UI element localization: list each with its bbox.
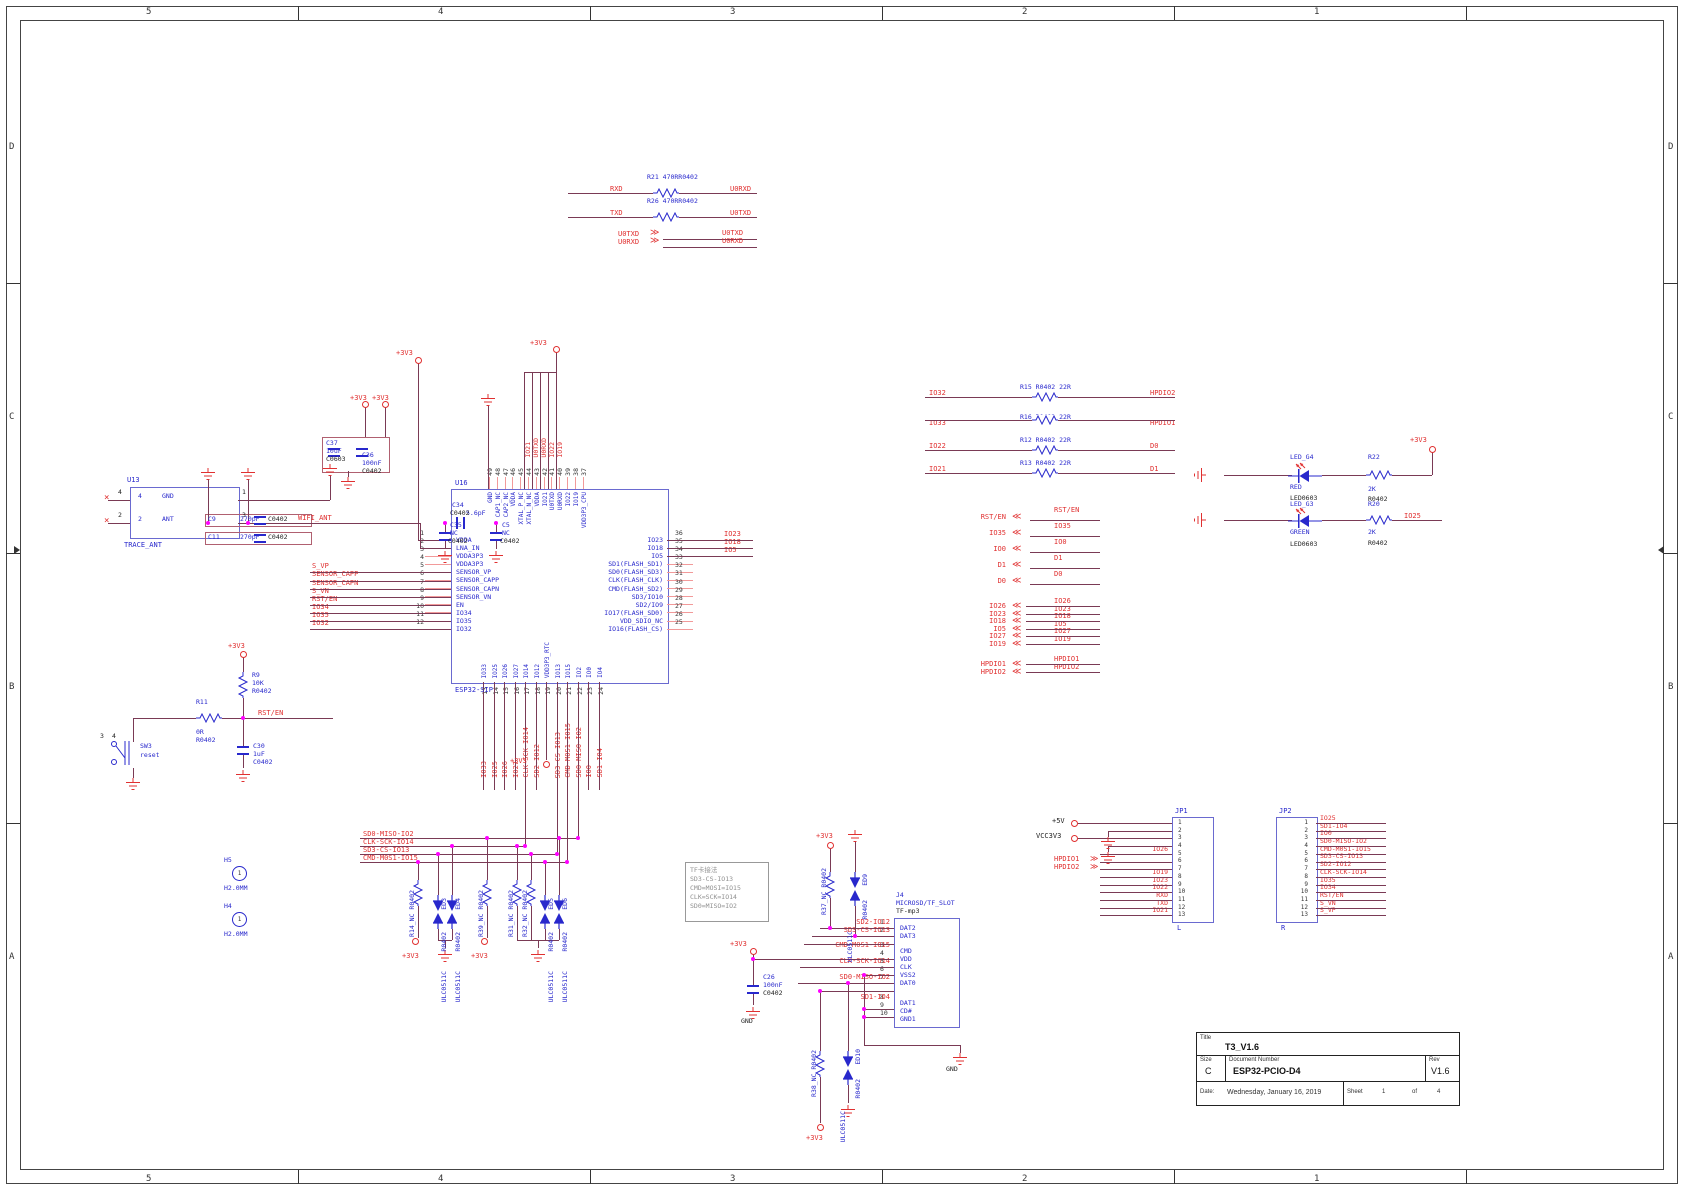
label-antenna-c34_pkg: C0402 [450, 510, 470, 517]
jp2-pin[interactable]: 6 [1278, 857, 1312, 865]
wire [667, 548, 753, 549]
jp1-pin[interactable]: 4 [1174, 842, 1194, 850]
wire [1100, 908, 1172, 909]
label-j4-pwr: +3V3 [730, 940, 747, 948]
wire [238, 500, 330, 501]
j4-pin[interactable]: 9CD# [896, 1007, 956, 1015]
doc-number-label: Document Number [1229, 1057, 1279, 1063]
zone-label: D [9, 142, 14, 152]
wire [548, 372, 549, 489]
capacitor-symbol[interactable] [747, 985, 759, 994]
label-leds-1-net: IO25 [1404, 512, 1421, 520]
zone-strip-bottom: 54321 [0, 1174, 1684, 1186]
pin-name: IO34 [456, 609, 499, 617]
wire [531, 906, 532, 940]
pin-stub [505, 477, 506, 489]
power-terminal[interactable] [827, 842, 834, 849]
label-tvs_top-pwr: +3V3 [816, 832, 833, 840]
label-uart-bus_right_txd: U0TXD [722, 229, 743, 237]
wire [310, 589, 451, 590]
wire [559, 929, 560, 940]
esp32-top-pin-numbers: 49484746454443424140393837 [486, 457, 587, 489]
wire [108, 523, 130, 524]
wire [599, 682, 600, 790]
wire [1100, 877, 1172, 878]
pin-name: VSS2 [896, 971, 956, 979]
label-esd-ulc: ULC0511C [562, 971, 569, 1002]
junction-dot [565, 860, 569, 864]
label-reset-sw_label: reset [140, 752, 160, 759]
jp1-pin[interactable]: 11 [1174, 896, 1194, 904]
label-reset-sw_pin3: 3 [100, 733, 104, 740]
wire [1316, 869, 1386, 870]
junction-dot [557, 836, 561, 840]
jp1-pin[interactable]: 12 [1174, 904, 1194, 912]
esp32-top-pin[interactable]: 37 [580, 457, 588, 489]
glyph-mark: × [104, 517, 109, 526]
wire [925, 450, 1032, 451]
wire [1224, 520, 1292, 521]
net-label: D1 [950, 561, 1006, 569]
wire [108, 500, 130, 501]
jp1-pin[interactable]: 6 [1174, 857, 1194, 865]
edge-arrow [1658, 546, 1664, 554]
tf-note-line: CMD=MOSI=IO15 [690, 884, 764, 893]
label-j4-sub: TF-mp3 [896, 908, 919, 915]
bus-entry-chevron: ≪ [1012, 560, 1021, 570]
pin-name: IO26 [502, 664, 509, 678]
zone-tick [1466, 1170, 1467, 1184]
pin-stub [575, 477, 576, 489]
wire [588, 682, 589, 790]
wire [1100, 892, 1172, 893]
junction-dot [862, 1007, 866, 1011]
label-esd-ed3: ED3 [441, 898, 448, 910]
label-leds-1-rpkg: R0402 [1368, 540, 1388, 547]
wire [925, 397, 1032, 398]
label-uart-u0rxd: U0RXD [730, 185, 751, 193]
wire [418, 862, 419, 880]
label-esp32-ref: U16 [455, 479, 468, 487]
junction-dot [543, 860, 547, 864]
label-tvs_top-ed_ref: ED9 [862, 874, 869, 886]
jp2-pin[interactable]: 4 [1278, 842, 1312, 850]
zone-tick [1664, 283, 1678, 284]
wire [1322, 520, 1366, 521]
zone-strip-top: 54321 [0, 7, 1684, 19]
title-label: Title [1200, 1035, 1211, 1041]
wire [1316, 831, 1386, 832]
wire [667, 556, 753, 557]
label-esd-bus-0: SD0-MISO-IO2 [363, 830, 414, 838]
edge-arrow [14, 546, 20, 554]
wire [960, 1045, 961, 1053]
wire [864, 1045, 960, 1046]
label-antenna-c9_val: 270pF [240, 516, 260, 523]
label-jp1-p5v: +5V [1052, 817, 1065, 825]
pin-name: SENSOR_VN [456, 593, 499, 601]
junction-dot [846, 981, 850, 985]
esp32-bottom-pin-names: IO33IO25IO26IO27IO14IO12VDD3P3_RTCIO13IO… [479, 620, 605, 680]
pin-name: IO4 [597, 667, 604, 678]
wire [1078, 838, 1172, 839]
pin-stub [520, 477, 521, 489]
label-tvs_bot-ed_part: ULC0511C [840, 1111, 847, 1142]
net-label: RST/EN [950, 513, 1006, 521]
pin-stub [559, 477, 560, 489]
pin-name: SENSOR_CAPN [456, 585, 499, 593]
jp1-pin[interactable]: 7 [1174, 865, 1194, 873]
wire [420, 548, 451, 549]
label-esp32-pwr2: +3V3 [396, 349, 413, 357]
power-terminal[interactable] [382, 401, 389, 408]
jp1-pin[interactable]: 8 [1174, 873, 1194, 881]
jp1-pin[interactable]: 10 [1174, 888, 1194, 896]
net-label: SD0-MISO-IO2 [575, 727, 583, 778]
pin-name: DAT2 [896, 924, 956, 932]
label-esd-pwr1: +3V3 [402, 952, 419, 960]
wire [517, 846, 518, 880]
wire [1030, 584, 1100, 585]
label-leds-1-ref: LED_G3 [1290, 501, 1313, 508]
label-esd-ulc: ULC0511C [441, 971, 448, 1002]
net-label: SD1-IO4 [700, 993, 890, 1001]
label-antenna-c11_ref: C11 [208, 534, 220, 541]
net-label: CMD-M0S1-IO15 [700, 941, 890, 949]
pin-name: IO0 [586, 667, 593, 678]
wire [1026, 672, 1100, 673]
net-label: D0 [950, 577, 1006, 585]
label-esp32-top_nets-2: U0RXD [541, 438, 548, 458]
zone-tick [6, 283, 20, 284]
tf-note-line: TF卡接法 [690, 866, 764, 875]
net-label: HPDIO1 [1054, 655, 1079, 663]
wire [1030, 552, 1100, 553]
label-esd-pkg: R0402 [562, 932, 569, 952]
wire [515, 682, 516, 790]
wire [1316, 838, 1386, 839]
esp32-right-pin[interactable]: 25 [667, 625, 693, 633]
label-c26-pkg: C0402 [763, 990, 783, 997]
pin-stub [544, 477, 545, 489]
wire [1058, 450, 1175, 451]
power-terminal[interactable] [1071, 820, 1078, 827]
rev-value: V1.6 [1431, 1066, 1450, 1076]
wire [538, 940, 539, 948]
zone-tick [1664, 823, 1678, 824]
jp2-pin[interactable]: 7 [1278, 865, 1312, 873]
label-reset-net: RST/EN [258, 709, 283, 717]
wire [517, 906, 518, 940]
power-terminal[interactable] [543, 761, 550, 768]
zone-strip-right: DCBA [1668, 0, 1678, 1190]
wire [243, 657, 244, 672]
sheet-total: 4 [1437, 1089, 1440, 1095]
wire [830, 898, 831, 928]
hole-circle: 1 [232, 912, 247, 927]
junction-dot [436, 852, 440, 856]
jp1-pin[interactable]: 13 [1174, 911, 1194, 919]
j4-pin[interactable]: 7DAT0 [896, 979, 956, 987]
jp2-pin[interactable]: 11 [1278, 896, 1312, 904]
j4-pin[interactable]: 6VSS2 [896, 971, 956, 979]
pin-name: IO14 [523, 664, 530, 678]
net-label: D1 [1054, 554, 1062, 562]
wire [310, 621, 451, 622]
power-terminal[interactable] [240, 651, 247, 658]
wire [1432, 452, 1433, 475]
jp2-pin[interactable]: 12 [1278, 904, 1312, 912]
wire [1316, 846, 1386, 847]
wire [483, 682, 484, 790]
pin-stub [667, 629, 693, 630]
label-antenna-c35_pkg: C0402 [448, 538, 468, 545]
zone-tick [590, 6, 591, 20]
bus-entry-chevron: ≪ [1012, 576, 1021, 586]
mounting-holes: H5 1 H2.0MM H4 1 H2.0MM [224, 856, 284, 948]
jp1-pin[interactable]: 3 [1174, 834, 1194, 842]
j4-pin[interactable]: 5CLK [896, 963, 956, 971]
zone-tick [1174, 1170, 1175, 1184]
label-jp2-ref: JP2 [1279, 807, 1292, 815]
power-terminal[interactable] [412, 938, 419, 945]
wire [1026, 621, 1100, 622]
zone-label: 3 [730, 7, 735, 17]
wire [360, 862, 567, 863]
pin-name: IO5 [520, 552, 663, 560]
wire [848, 983, 849, 1051]
esp32-top-pin[interactable]: 40 [556, 457, 564, 489]
zone-label: C [1668, 412, 1673, 422]
pin-name: CMD(FLASH_SD2) [520, 585, 663, 593]
j4-pin[interactable]: 8DAT1 [896, 999, 956, 1007]
label-uart-bus_right_rxd: U0RXD [722, 237, 743, 245]
wire [556, 352, 557, 372]
net-label: IO19 [950, 640, 1006, 648]
jp1-pin[interactable]: 1 [1174, 819, 1194, 827]
wire [1316, 854, 1386, 855]
pin-name: VDD3P3_CPU [581, 492, 588, 528]
label-reset-r9_pkg: R0402 [252, 688, 272, 695]
net-label: IO35 [1054, 522, 1071, 530]
jp1-pin[interactable]: 2 [1174, 827, 1194, 835]
jp2-pin[interactable]: 9 [1278, 881, 1312, 889]
wire [532, 372, 533, 489]
power-terminal[interactable] [415, 357, 422, 364]
wire [1026, 636, 1100, 637]
label-uart-rxd: RXD [610, 185, 623, 193]
wire [925, 473, 1032, 474]
jp2-pin[interactable]: 13 [1278, 911, 1312, 919]
schematic-sheet: 54321 54321 DCBA DCBA TF卡接法SD3-CS-IO13CM… [0, 0, 1684, 1190]
pin-stub [551, 477, 552, 489]
jp2-pin[interactable]: 10 [1278, 888, 1312, 896]
zone-label: A [9, 952, 14, 962]
label-c26-gnd: GND [741, 1018, 753, 1025]
j4-pin[interactable]: 3CMD [896, 947, 956, 955]
junction-dot [862, 1015, 866, 1019]
power-terminal[interactable] [1429, 446, 1436, 453]
wire [545, 862, 546, 895]
label-esd-r39: R39_NC R0402 [478, 890, 485, 937]
wire [546, 682, 547, 760]
jp2-pin[interactable]: 8 [1278, 873, 1312, 881]
esp32-top-pin[interactable]: 38 [572, 457, 580, 489]
u13-ref: U13 [127, 476, 140, 484]
jp2-pin[interactable]: 2 [1278, 827, 1312, 835]
zone-strip-left: DCBA [9, 0, 19, 1190]
wire [663, 247, 757, 248]
zone-tick [1466, 6, 1467, 20]
pin-name: CLK(FLASH_CLK) [520, 576, 663, 584]
label-antenna-c5_pkg: C0402 [500, 538, 520, 545]
label-esp32-part: ESP32-SIP [455, 686, 493, 694]
pin-name: IO2 [576, 667, 583, 678]
net-label: IO25 [491, 761, 499, 778]
wire [820, 1077, 821, 1123]
j4-pin[interactable]: 1DAT2 [896, 924, 956, 932]
zone-tick [1174, 6, 1175, 20]
wire [864, 1009, 894, 1010]
tf-note-line: SD0=MISO=IO2 [690, 902, 764, 911]
wire [1026, 664, 1100, 665]
label-esd-ed5: ED5 [548, 898, 555, 910]
j4-pin[interactable]: 10GND1 [896, 1015, 956, 1023]
label-esd-pwr2: +3V3 [471, 952, 488, 960]
net-label: CMD-M0S1-IO15 [564, 723, 572, 778]
label-jp1-ref: JP1 [1175, 807, 1188, 815]
jp1-pin[interactable]: 5 [1174, 850, 1194, 858]
zone-label: 1 [1314, 1174, 1319, 1184]
label-leds-0-rval: 2K [1368, 486, 1376, 493]
glyph-mark: ≫ [1090, 863, 1098, 871]
label-esd-ed4: ED4 [455, 898, 462, 910]
wire [667, 540, 753, 541]
wire [1058, 397, 1175, 398]
wire [1030, 520, 1100, 521]
label-reset-sw_pin4: 4 [112, 733, 116, 740]
mounting-hole[interactable]: H5 1 H2.0MM [224, 856, 284, 902]
wire [820, 991, 894, 992]
j4-pin[interactable]: 4VDD [896, 955, 956, 963]
mounting-hole[interactable]: H4 1 H2.0MM [224, 902, 284, 948]
pin-name: IO33 [481, 664, 488, 678]
zone-label: 4 [438, 1174, 443, 1184]
sheet-label: Sheet [1347, 1089, 1363, 1095]
port-arrows-group-b: IO26≪IO26IO23≪IO23IO18≪IO18IO5≪IO5IO27≪I… [950, 603, 1150, 648]
jp2-pin[interactable]: 5 [1278, 850, 1312, 858]
wire [1316, 862, 1386, 863]
jp2-pin-numbers: 12345678910111213 [1278, 819, 1312, 919]
label-antenna-c11_val: 270pF [240, 534, 260, 541]
zone-tick [298, 6, 299, 20]
wire [133, 768, 134, 778]
label-uart-txd: TXD [610, 209, 623, 217]
zone-label: B [1668, 682, 1673, 692]
wire [1316, 823, 1386, 824]
wire [243, 718, 333, 719]
jp2-pin[interactable]: 1 [1278, 819, 1312, 827]
wire [753, 959, 894, 960]
pin-name: VDD [896, 955, 956, 963]
power-terminal[interactable] [481, 938, 488, 945]
wire [1108, 831, 1109, 837]
wire [310, 605, 451, 606]
label-esp32-pwr3: +3V3 [510, 757, 527, 765]
glyph-mark: ≫ [650, 237, 659, 246]
wire [524, 372, 525, 489]
wire [556, 372, 557, 489]
zone-tick [882, 1170, 883, 1184]
esp32-top-pin[interactable]: 48 [494, 457, 502, 489]
power-terminal[interactable] [362, 401, 369, 408]
pin-name: SD0(FLASH_SD3) [520, 568, 663, 576]
tf-note-line: CLK=SCK=IO14 [690, 893, 764, 902]
esp32-top-pin[interactable]: 39 [564, 457, 572, 489]
wire [1026, 614, 1100, 615]
jp2-pin[interactable]: 3 [1278, 834, 1312, 842]
label-antenna-c9_ref: C9 [208, 516, 216, 523]
wire [1108, 846, 1172, 847]
label-esd-pkg: R0402 [548, 932, 555, 952]
wire [753, 959, 754, 985]
power-terminal[interactable] [817, 1124, 824, 1131]
u13-pin-gnd: GND [162, 493, 174, 500]
wire [1058, 473, 1175, 474]
zone-label: 5 [146, 7, 151, 17]
esp32-top-pin[interactable]: 41 [548, 457, 556, 489]
label-reset-pwr: +3V3 [228, 642, 245, 650]
pin-name: DAT1 [896, 999, 956, 1007]
wire [1100, 885, 1172, 886]
port-arrows-group-a: RST/EN≪RST/ENIO35≪IO35IO0≪IO0D1≪D1D0≪D0 [950, 514, 1150, 594]
wire [855, 850, 856, 872]
label-uart-bus_left_rxd: U0RXD [618, 238, 639, 246]
label-j4-gnd: GND [946, 1066, 958, 1073]
pin-name: SD2/IO9 [520, 601, 663, 609]
j4-pin[interactable]: 2DAT3 [896, 932, 956, 940]
wire [830, 849, 831, 872]
j4-pins: 1DAT22DAT33CMD4VDD5CLK6VSS27DAT08DAT19CD… [896, 924, 956, 1023]
label-uart-bus_left_txd: U0TXD [618, 230, 639, 238]
date-label: Date: [1200, 1089, 1214, 1095]
wire [243, 718, 244, 746]
zone-label: 4 [438, 7, 443, 17]
wire [925, 420, 1032, 421]
junction-dot [515, 844, 519, 848]
zone-label: A [1668, 952, 1673, 962]
label-esd-bus-3: CMD-M0S1-IO15 [363, 854, 418, 862]
net-label: RST/EN [1054, 506, 1079, 514]
jp1-pin[interactable]: 9 [1174, 881, 1194, 889]
pin-name: DAT0 [896, 979, 956, 987]
net-label: IO0 [1054, 538, 1067, 546]
pin-stub [425, 564, 451, 565]
label-esp32-top_nets-3: IO22 [549, 442, 556, 458]
pin-stub [497, 477, 498, 489]
bus-entry-chevron: ≪ [1012, 528, 1021, 538]
label-tvs_top-ed_pkg: R0402 [862, 900, 869, 920]
power-terminal[interactable] [750, 948, 757, 955]
wire [222, 718, 243, 719]
wire [1058, 420, 1175, 421]
capacitor-symbol[interactable] [237, 746, 249, 755]
power-terminal[interactable] [553, 346, 560, 353]
label-jp2-tag: R [1281, 924, 1285, 932]
esp32-right-pins: 363534333231302928272625 [667, 536, 693, 633]
wire [559, 838, 560, 895]
wire [1316, 892, 1386, 893]
